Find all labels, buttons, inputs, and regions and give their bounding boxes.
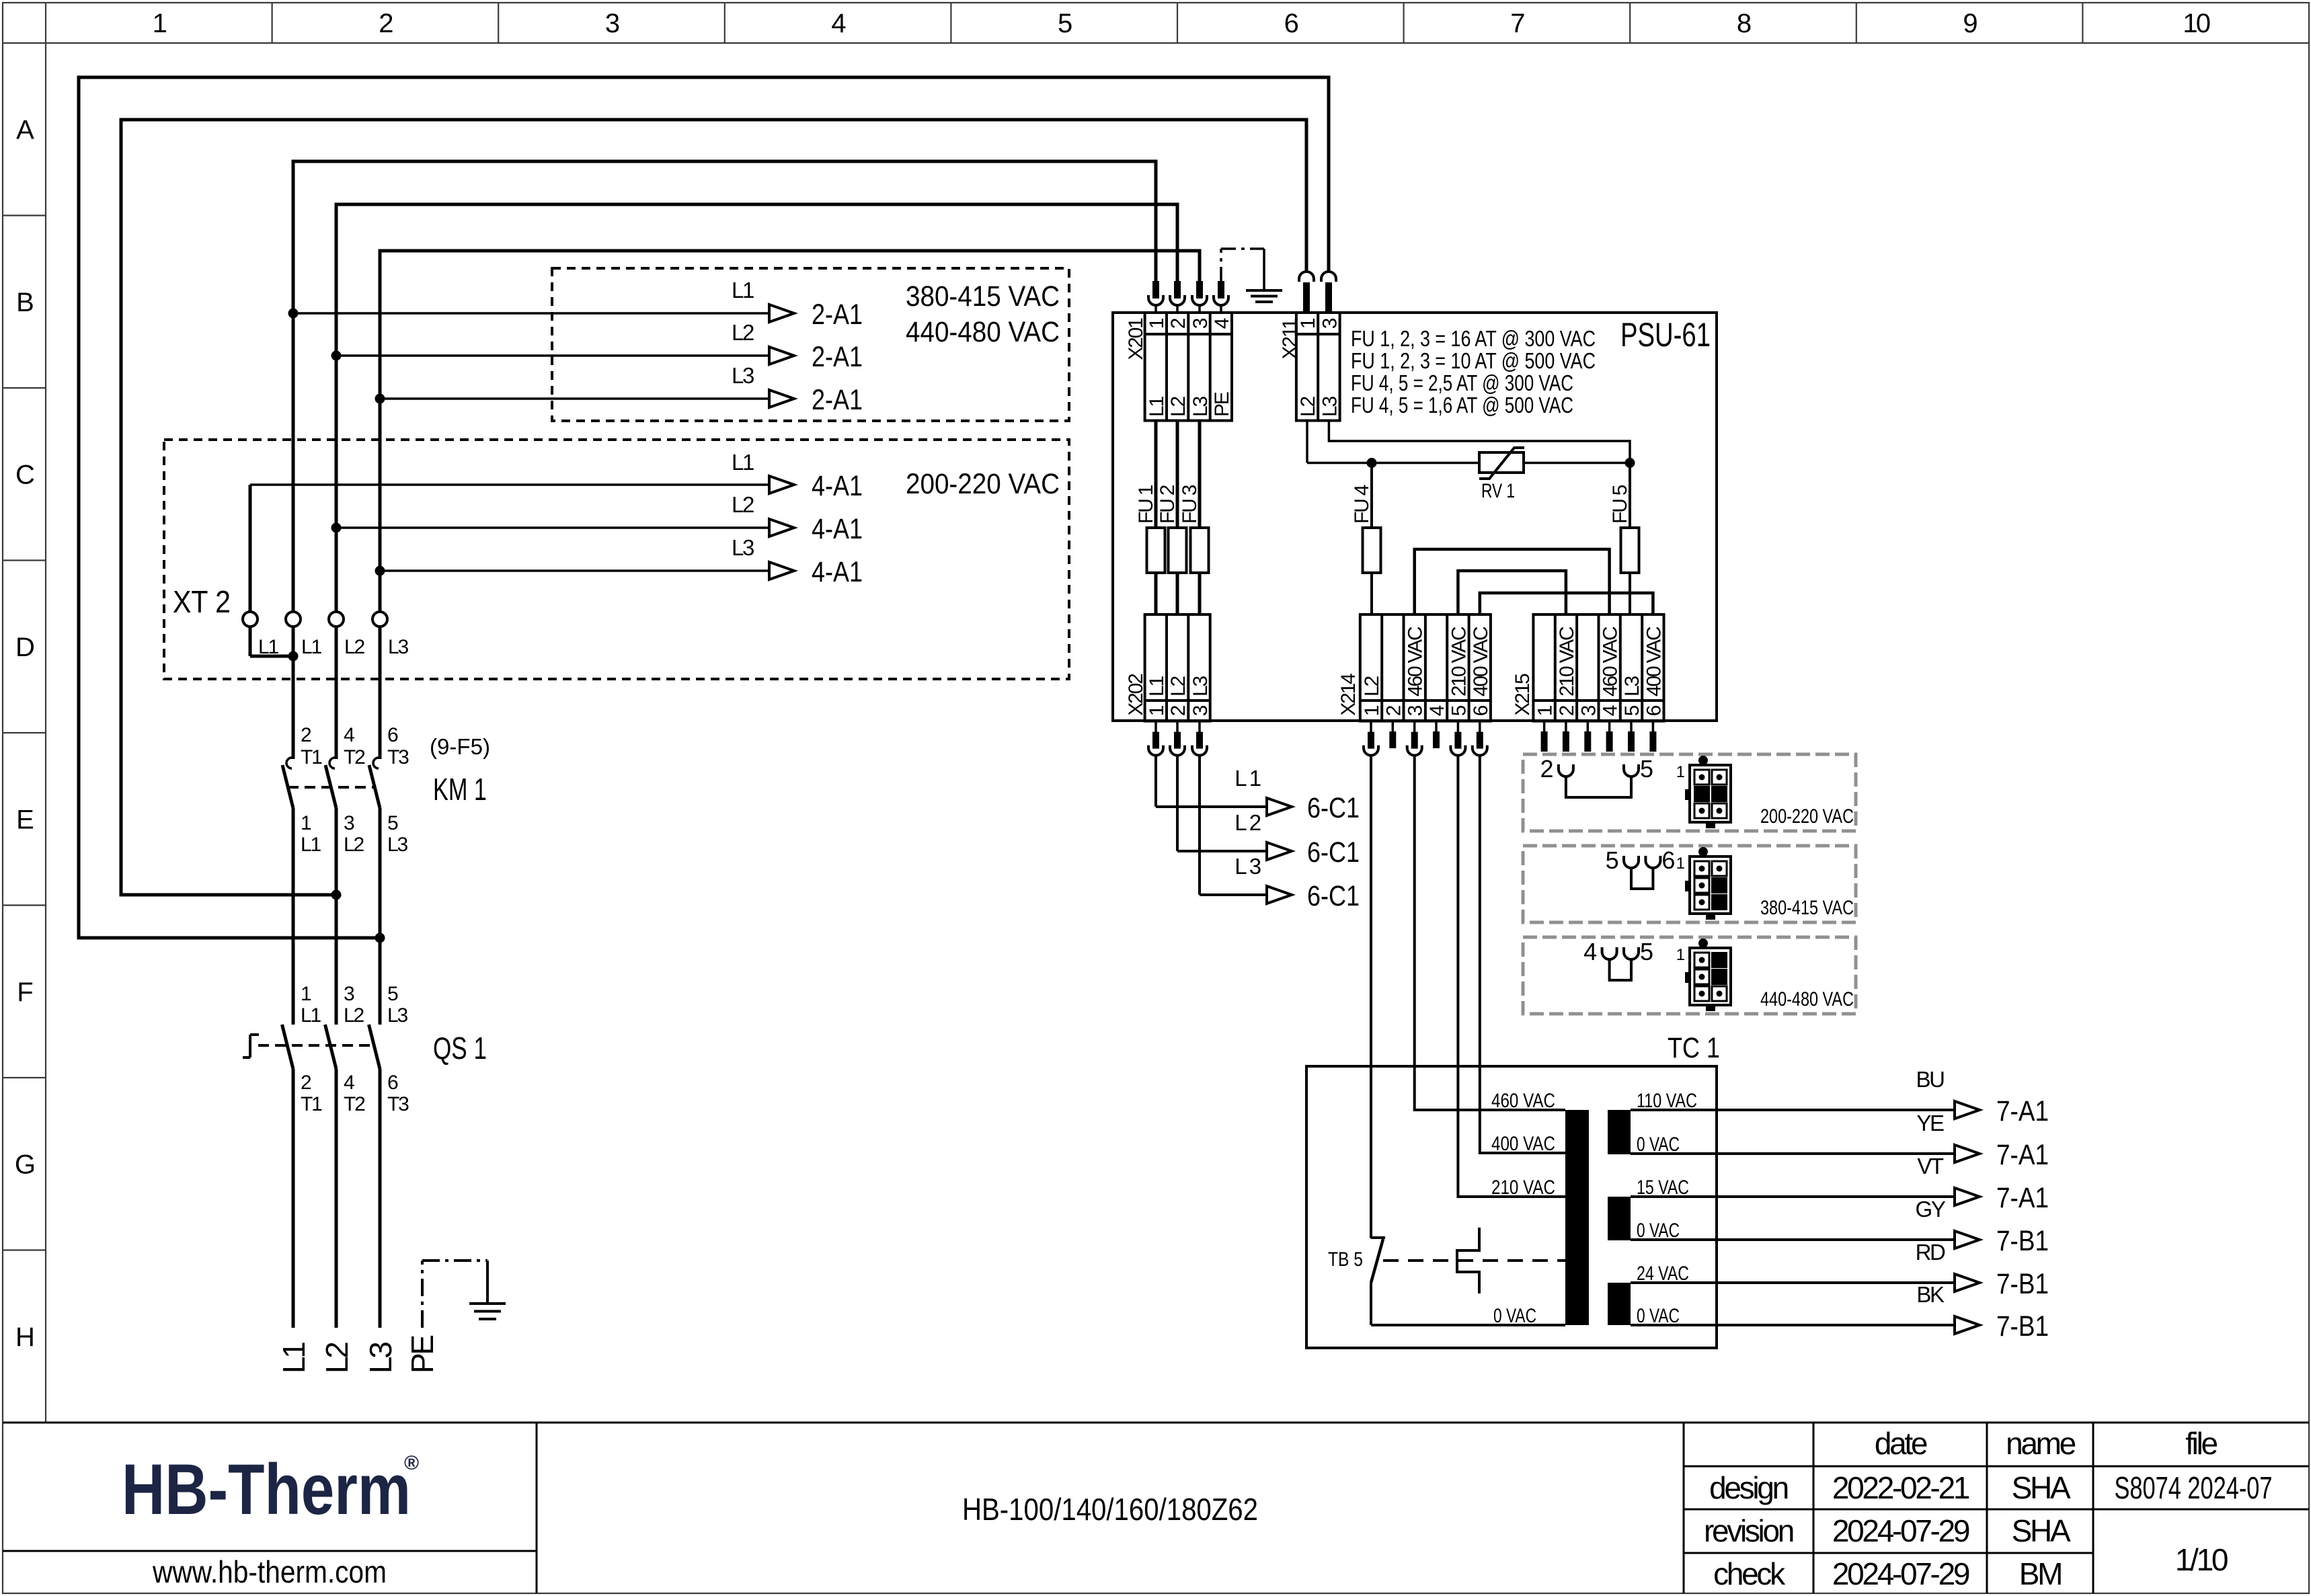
svg-text:T1: T1 xyxy=(301,1093,322,1115)
svg-text:HB-100/140/160/180Z62: HB-100/140/160/180Z62 xyxy=(962,1492,1258,1527)
svg-text:6: 6 xyxy=(1643,705,1665,716)
svg-text:4: 4 xyxy=(344,724,354,746)
svg-text:L1: L1 xyxy=(301,636,321,658)
svg-text:S8074 2024-07: S8074 2024-07 xyxy=(2115,1470,2273,1505)
svg-text:3: 3 xyxy=(1319,318,1341,329)
svg-text:T3: T3 xyxy=(387,746,409,768)
svg-text:SHA: SHA xyxy=(2012,1513,2071,1548)
svg-text:0 VAC: 0 VAC xyxy=(1637,1133,1680,1156)
svg-text:L 3: L 3 xyxy=(1235,854,1260,879)
svg-text:5: 5 xyxy=(1448,705,1470,716)
svg-text:5: 5 xyxy=(1058,9,1072,38)
svg-text:1: 1 xyxy=(1534,705,1557,716)
svg-text:GY: GY xyxy=(1916,1197,1946,1222)
svg-text:X214: X214 xyxy=(1337,674,1360,716)
svg-text:revision: revision xyxy=(1704,1513,1793,1548)
svg-text:4-A1: 4-A1 xyxy=(812,470,863,502)
svg-text:400 VAC: 400 VAC xyxy=(1643,627,1665,696)
svg-text:460 VAC: 460 VAC xyxy=(1600,627,1622,696)
svg-text:L3: L3 xyxy=(1189,397,1212,417)
svg-text:2: 2 xyxy=(1382,705,1405,716)
svg-text:1: 1 xyxy=(301,983,311,1005)
svg-text:L3: L3 xyxy=(363,1343,398,1373)
svg-text:FU 4, 5 = 2,5 AT @ 300 VAC: FU 4, 5 = 2,5 AT @ 300 VAC xyxy=(1351,370,1573,395)
svg-text:G: G xyxy=(15,1150,34,1179)
svg-text:3: 3 xyxy=(605,9,619,38)
svg-text:4: 4 xyxy=(1426,705,1448,716)
svg-text:5: 5 xyxy=(1640,938,1653,965)
svg-text:L2: L2 xyxy=(344,1004,364,1027)
svg-text:L3: L3 xyxy=(387,1004,407,1027)
svg-text:check: check xyxy=(1713,1556,1786,1591)
svg-text:RD: RD xyxy=(1916,1240,1945,1265)
svg-text:L2: L2 xyxy=(1167,676,1189,696)
svg-text:F: F xyxy=(17,977,32,1007)
svg-text:1/10: 1/10 xyxy=(2175,1542,2228,1577)
svg-text:210 VAC: 210 VAC xyxy=(1556,627,1578,696)
svg-text:1: 1 xyxy=(1676,946,1685,964)
svg-text:4: 4 xyxy=(1583,938,1596,965)
svg-text:4: 4 xyxy=(831,9,846,38)
svg-text:4: 4 xyxy=(1211,318,1233,329)
svg-text:FU 4: FU 4 xyxy=(1351,485,1373,524)
svg-text:2-A1: 2-A1 xyxy=(812,341,863,373)
svg-text:C: C xyxy=(15,460,34,489)
svg-text:200-220 VAC: 200-220 VAC xyxy=(1760,805,1854,828)
svg-text:L1: L1 xyxy=(301,834,321,856)
svg-text:2: 2 xyxy=(1167,705,1189,716)
svg-text:6: 6 xyxy=(387,1072,398,1094)
svg-text:T2: T2 xyxy=(344,1093,365,1115)
svg-text:380-415 VAC: 380-415 VAC xyxy=(906,280,1060,313)
svg-text:L3: L3 xyxy=(1189,676,1212,696)
svg-text:4-A1: 4-A1 xyxy=(812,513,863,545)
svg-text:L1: L1 xyxy=(1146,397,1168,417)
svg-text:5: 5 xyxy=(387,812,398,834)
svg-text:PSU-61: PSU-61 xyxy=(1620,316,1711,354)
svg-text:file: file xyxy=(2185,1426,2217,1461)
svg-text:T3: T3 xyxy=(387,1093,409,1115)
svg-text:L1: L1 xyxy=(732,278,754,303)
svg-text:www.hb-therm.com: www.hb-therm.com xyxy=(152,1554,387,1589)
svg-text:L2: L2 xyxy=(344,834,364,856)
svg-text:7-B1: 7-B1 xyxy=(1996,1225,2049,1257)
svg-text:2-A1: 2-A1 xyxy=(812,298,863,331)
svg-text:6: 6 xyxy=(1661,846,1674,874)
svg-text:6: 6 xyxy=(1470,705,1492,716)
svg-text:VT: VT xyxy=(1917,1154,1944,1179)
svg-text:7-B1: 7-B1 xyxy=(1996,1268,2049,1300)
svg-text:TB 5: TB 5 xyxy=(1328,1248,1363,1271)
svg-text:4: 4 xyxy=(1600,705,1622,716)
svg-text:460 VAC: 460 VAC xyxy=(1491,1090,1555,1112)
svg-text:L2: L2 xyxy=(319,1343,354,1373)
svg-text:SHA: SHA xyxy=(2012,1470,2071,1505)
svg-text:3: 3 xyxy=(344,983,354,1005)
svg-text:1: 1 xyxy=(1361,705,1383,716)
svg-text:QS 1: QS 1 xyxy=(433,1031,487,1066)
svg-text:L 1: L 1 xyxy=(1235,766,1260,791)
svg-text:7: 7 xyxy=(1510,9,1524,38)
svg-text:X201: X201 xyxy=(1125,318,1147,360)
svg-text:RV 1: RV 1 xyxy=(1481,480,1515,502)
svg-text:L2: L2 xyxy=(1167,397,1189,417)
svg-text:L1: L1 xyxy=(258,636,278,658)
svg-text:L3: L3 xyxy=(1319,397,1341,417)
svg-text:T1: T1 xyxy=(301,746,322,768)
svg-text:10: 10 xyxy=(2183,9,2209,38)
svg-text:6-C1: 6-C1 xyxy=(1307,836,1360,869)
svg-text:KM 1: KM 1 xyxy=(433,772,487,807)
svg-text:6: 6 xyxy=(387,724,398,746)
svg-text:460 VAC: 460 VAC xyxy=(1405,627,1427,696)
svg-text:15 VAC: 15 VAC xyxy=(1637,1176,1689,1199)
svg-text:D: D xyxy=(15,633,34,662)
svg-text:7-A1: 7-A1 xyxy=(1996,1139,2049,1171)
svg-text:4-A1: 4-A1 xyxy=(812,556,863,588)
svg-text:380-415 VAC: 380-415 VAC xyxy=(1760,897,1854,919)
svg-text:2: 2 xyxy=(379,9,393,38)
svg-text:YE: YE xyxy=(1916,1111,1944,1135)
svg-text:HB-Therm: HB-Therm xyxy=(122,1449,411,1529)
svg-text:PE: PE xyxy=(1211,392,1233,417)
svg-text:0 VAC: 0 VAC xyxy=(1637,1305,1680,1327)
svg-text:L2: L2 xyxy=(1297,397,1319,417)
svg-text:®: ® xyxy=(404,1452,419,1474)
svg-text:6-C1: 6-C1 xyxy=(1307,792,1360,824)
svg-text:L1: L1 xyxy=(732,450,754,475)
svg-text:2: 2 xyxy=(301,724,311,746)
svg-text:6: 6 xyxy=(1284,9,1298,38)
svg-text:FU 4, 5 = 1,6 AT @ 500 VAC: FU 4, 5 = 1,6 AT @ 500 VAC xyxy=(1351,393,1573,417)
svg-text:XT 2: XT 2 xyxy=(173,584,231,619)
svg-text:210 VAC: 210 VAC xyxy=(1448,627,1470,696)
svg-text:440-480 VAC: 440-480 VAC xyxy=(1760,988,1854,1010)
svg-text:2024-07-29: 2024-07-29 xyxy=(1832,1556,1969,1591)
svg-text:BU: BU xyxy=(1916,1067,1944,1092)
svg-text:2: 2 xyxy=(1167,318,1189,329)
svg-text:3: 3 xyxy=(1189,705,1212,716)
svg-text:B: B xyxy=(16,288,33,317)
svg-text:0 VAC: 0 VAC xyxy=(1637,1220,1680,1242)
svg-text:5: 5 xyxy=(1640,755,1653,783)
svg-text:X215: X215 xyxy=(1512,674,1534,716)
svg-text:3: 3 xyxy=(1189,318,1212,329)
svg-text:L2: L2 xyxy=(1361,676,1383,696)
svg-text:2: 2 xyxy=(301,1072,311,1094)
svg-text:1: 1 xyxy=(1676,763,1685,781)
svg-text:FU 3: FU 3 xyxy=(1179,485,1201,524)
svg-text:440-480 VAC: 440-480 VAC xyxy=(906,316,1060,348)
svg-text:1: 1 xyxy=(301,812,311,834)
svg-text:7-A1: 7-A1 xyxy=(1996,1182,2049,1214)
svg-text:L1: L1 xyxy=(301,1004,321,1027)
svg-text:2022-02-21: 2022-02-21 xyxy=(1832,1470,1969,1505)
svg-text:3: 3 xyxy=(1405,705,1427,716)
svg-text:4: 4 xyxy=(344,1072,354,1094)
svg-text:L2: L2 xyxy=(344,636,364,658)
svg-text:210 VAC: 210 VAC xyxy=(1491,1176,1555,1199)
svg-text:L2: L2 xyxy=(732,492,754,517)
svg-text:400 VAC: 400 VAC xyxy=(1491,1133,1555,1155)
svg-text:2: 2 xyxy=(1540,755,1553,783)
svg-text:7-A1: 7-A1 xyxy=(1996,1095,2049,1127)
svg-text:(9-F5): (9-F5) xyxy=(430,734,490,759)
svg-text:6-C1: 6-C1 xyxy=(1307,880,1360,912)
svg-text:L1: L1 xyxy=(1146,676,1168,696)
svg-text:BK: BK xyxy=(1916,1282,1945,1307)
svg-text:1: 1 xyxy=(1146,318,1168,329)
svg-text:L3: L3 xyxy=(732,535,754,560)
svg-text:5: 5 xyxy=(1606,846,1618,874)
svg-text:2024-07-29: 2024-07-29 xyxy=(1832,1513,1969,1548)
svg-text:FU 1, 2, 3 = 16 AT @ 300 VAC: FU 1, 2, 3 = 16 AT @ 300 VAC xyxy=(1351,326,1596,351)
svg-text:FU 2: FU 2 xyxy=(1157,485,1179,524)
svg-text:design: design xyxy=(1709,1470,1787,1505)
svg-text:1: 1 xyxy=(1676,854,1685,873)
svg-text:5: 5 xyxy=(387,983,398,1005)
svg-text:110 VAC: 110 VAC xyxy=(1637,1090,1697,1112)
svg-text:2-A1: 2-A1 xyxy=(812,384,863,416)
svg-text:X211: X211 xyxy=(1279,319,1301,360)
svg-text:7-B1: 7-B1 xyxy=(1996,1310,2049,1343)
svg-text:9: 9 xyxy=(1963,9,1977,38)
svg-text:L 2: L 2 xyxy=(1235,810,1260,835)
svg-text:1: 1 xyxy=(1146,705,1168,716)
svg-text:T2: T2 xyxy=(344,746,365,768)
svg-text:400 VAC: 400 VAC xyxy=(1470,627,1492,696)
svg-text:FU 1: FU 1 xyxy=(1135,485,1157,524)
svg-text:date: date xyxy=(1875,1426,1927,1461)
svg-text:FU 1, 2, 3 = 10 AT @ 500 VAC: FU 1, 2, 3 = 10 AT @ 500 VAC xyxy=(1351,348,1596,373)
svg-text:TC 1: TC 1 xyxy=(1668,1032,1720,1064)
svg-text:E: E xyxy=(16,805,33,834)
svg-text:24 VAC: 24 VAC xyxy=(1637,1263,1689,1285)
svg-text:L1: L1 xyxy=(276,1343,311,1373)
svg-text:8: 8 xyxy=(1737,9,1751,38)
svg-text:L2: L2 xyxy=(732,320,754,345)
svg-text:L3: L3 xyxy=(1621,676,1643,696)
svg-text:L3: L3 xyxy=(388,636,408,658)
svg-text:BM: BM xyxy=(2019,1556,2061,1591)
svg-text:200-220 VAC: 200-220 VAC xyxy=(906,468,1060,500)
svg-text:0 VAC: 0 VAC xyxy=(1493,1305,1536,1327)
svg-text:5: 5 xyxy=(1621,705,1643,716)
svg-text:X202: X202 xyxy=(1125,674,1147,716)
svg-text:2: 2 xyxy=(1556,705,1578,716)
svg-text:PE: PE xyxy=(405,1336,440,1373)
svg-text:3: 3 xyxy=(1577,705,1600,716)
svg-text:L3: L3 xyxy=(732,363,754,388)
svg-text:1: 1 xyxy=(153,9,167,38)
svg-text:3: 3 xyxy=(344,812,354,834)
svg-text:L3: L3 xyxy=(387,834,407,856)
svg-text:A: A xyxy=(16,115,34,145)
svg-text:H: H xyxy=(15,1322,33,1352)
svg-text:name: name xyxy=(2006,1426,2076,1461)
svg-text:FU 5: FU 5 xyxy=(1609,485,1631,524)
